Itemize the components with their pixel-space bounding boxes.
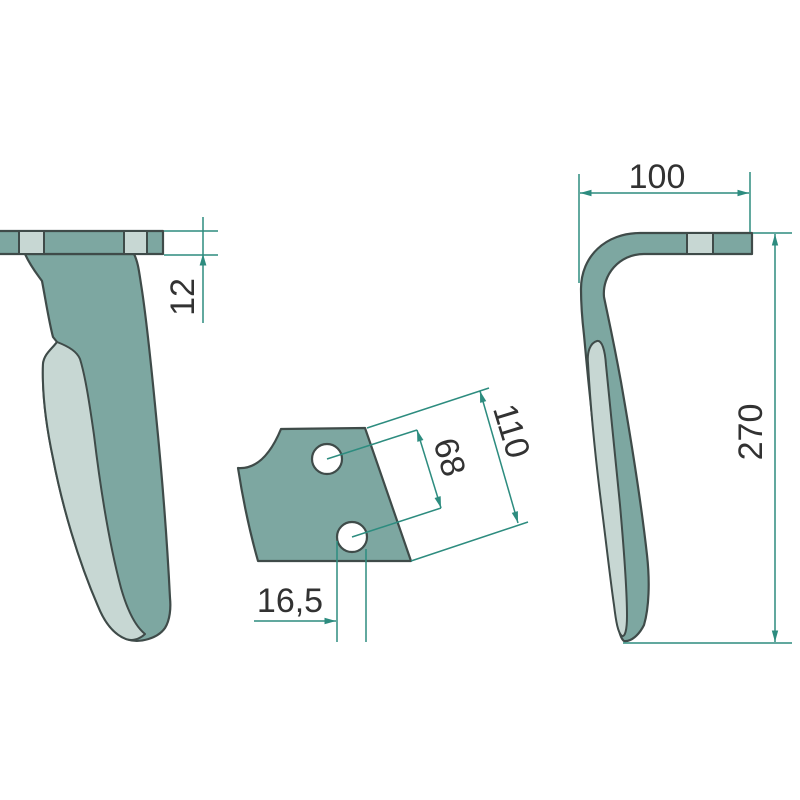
ext-line-blade-top — [367, 388, 489, 428]
dim-label-overall-height: 270 — [732, 404, 770, 461]
dim-label-arm-width: 100 — [629, 158, 686, 196]
front-view-tine — [0, 231, 170, 641]
flange-segment-light-1 — [19, 231, 44, 254]
dim-label-hole-offset: 16,5 — [257, 582, 323, 620]
side-view-profile — [581, 233, 752, 641]
ext-line-blade-bottom — [411, 522, 528, 561]
profile-arm-segment-light — [687, 233, 713, 254]
tine-technical-drawing: 12 68 110 16,5 100 — [0, 0, 800, 800]
dim-label-blade-length: 110 — [485, 400, 537, 463]
dimension-thickness: 12 — [164, 217, 218, 323]
technical-drawing-canvas: 12 68 110 16,5 100 — [0, 0, 800, 800]
flange-segment-light-2 — [124, 231, 147, 254]
dim-label-thickness: 12 — [164, 278, 202, 316]
face-view-blade — [238, 428, 411, 561]
dim-label-hole-spacing: 68 — [425, 434, 472, 481]
